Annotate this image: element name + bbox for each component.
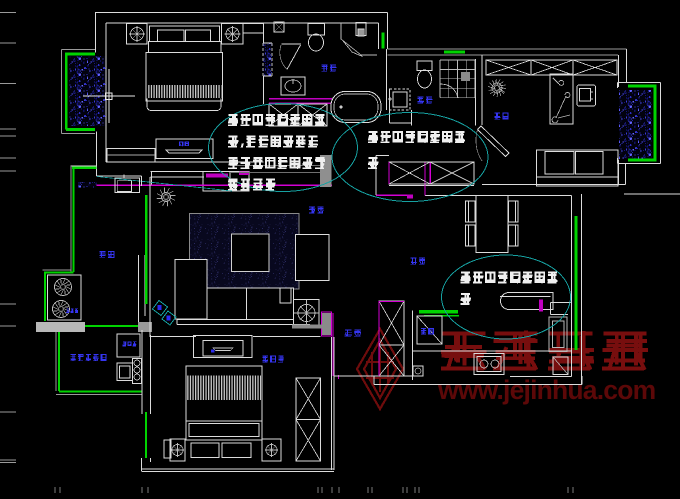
svg-text:www.jejinhua.com: www.jejinhua.com	[437, 375, 655, 405]
